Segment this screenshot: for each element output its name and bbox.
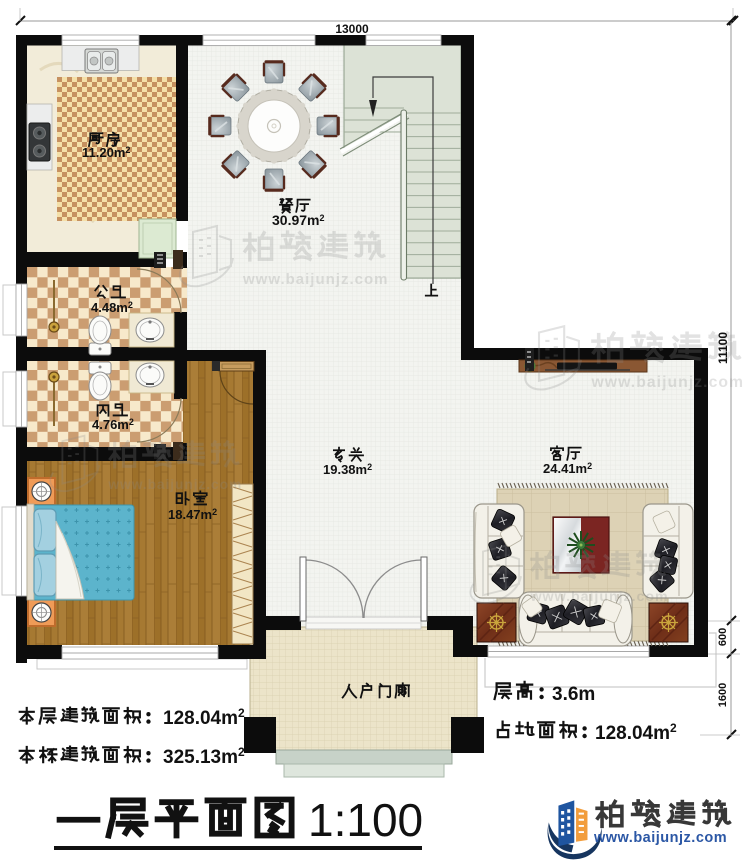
svg-text:600: 600 (717, 628, 729, 646)
svg-text:128.04m2: 128.04m2 (595, 721, 677, 744)
svg-text:www.baijunjz.com: www.baijunjz.com (242, 271, 388, 288)
svg-text:30.97m2: 30.97m2 (272, 212, 325, 228)
svg-text:24.41m2: 24.41m2 (543, 461, 592, 476)
svg-text:1:100: 1:100 (308, 794, 423, 846)
svg-text:www.baijunjz.com: www.baijunjz.com (591, 374, 745, 391)
svg-text:www.baijunjz.com: www.baijunjz.com (530, 589, 669, 605)
svg-text:325.13m2: 325.13m2 (163, 745, 245, 768)
svg-text:www.baijunjz.com: www.baijunjz.com (593, 830, 727, 846)
svg-text:19.38m2: 19.38m2 (323, 462, 372, 477)
svg-text:www.baijunjz.com: www.baijunjz.com (107, 477, 242, 492)
svg-text:4.48m2: 4.48m2 (91, 300, 133, 315)
svg-text:13000: 13000 (335, 22, 369, 36)
svg-text:11.20m2: 11.20m2 (82, 145, 130, 160)
svg-text:1600: 1600 (717, 683, 729, 707)
svg-text:4.76m2: 4.76m2 (92, 417, 134, 432)
svg-text:3.6m: 3.6m (552, 684, 595, 705)
svg-text:18.47m2: 18.47m2 (168, 507, 217, 522)
svg-text:11100: 11100 (716, 332, 730, 364)
svg-text:128.04m2: 128.04m2 (163, 706, 245, 729)
